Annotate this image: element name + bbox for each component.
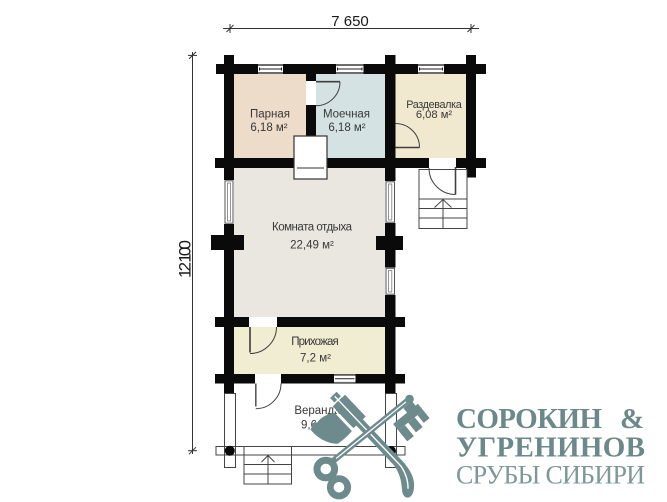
svg-text:22,49 м²: 22,49 м² (290, 240, 334, 252)
svg-text:Прихожая: Прихожая (291, 336, 339, 348)
svg-text:Парная: Парная (250, 109, 290, 121)
svg-text:УГРЕНИНОВ: УГРЕНИНОВ (456, 432, 645, 464)
svg-text:СРУБЫ СИБИРИ: СРУБЫ СИБИРИ (456, 461, 645, 490)
svg-text:Комната отдыха: Комната отдыха (272, 222, 353, 234)
svg-text:&: & (620, 403, 644, 435)
svg-text:6,18 м²: 6,18 м² (328, 122, 365, 134)
svg-text:6,08 м²: 6,08 м² (416, 109, 453, 121)
svg-text:6,18 м²: 6,18 м² (250, 122, 287, 134)
svg-text:7,2 м²: 7,2 м² (300, 353, 331, 365)
svg-text:12 100: 12 100 (176, 240, 195, 278)
svg-text:Моечная: Моечная (323, 109, 370, 121)
svg-text:7 650: 7 650 (331, 13, 369, 30)
svg-text:СОРОКИН: СОРОКИН (456, 403, 602, 435)
